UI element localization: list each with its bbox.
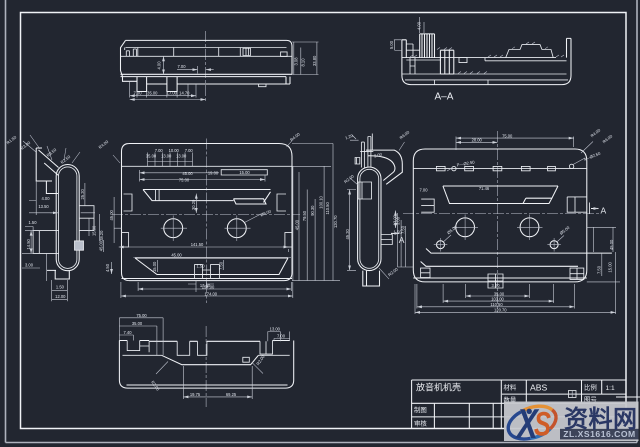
svg-text:15.00: 15.00 <box>152 261 157 272</box>
svg-text:110.50: 110.50 <box>490 302 503 307</box>
svg-text:13.00: 13.00 <box>161 154 172 159</box>
svg-text:45.00: 45.00 <box>294 219 299 230</box>
svg-text:10.00: 10.00 <box>169 148 180 153</box>
svg-text:30.20: 30.20 <box>191 199 196 210</box>
svg-text:35.00: 35.00 <box>147 91 158 96</box>
svg-text:7.50: 7.50 <box>597 265 602 274</box>
svg-text:45.00: 45.00 <box>182 171 193 176</box>
svg-text:120.70: 120.70 <box>494 308 507 313</box>
svg-text:13.50: 13.50 <box>38 204 49 209</box>
svg-text:7.00: 7.00 <box>277 334 286 339</box>
svg-text:7.00: 7.00 <box>420 187 429 192</box>
svg-text:1:1: 1:1 <box>606 385 615 392</box>
svg-text:ABS: ABS <box>530 383 547 393</box>
svg-text:75.00: 75.00 <box>179 177 190 182</box>
svg-text:75.00: 75.00 <box>136 313 147 318</box>
svg-text:14.50: 14.50 <box>26 239 31 250</box>
svg-text:15.00: 15.00 <box>239 170 250 175</box>
svg-text:4.00: 4.00 <box>42 196 51 201</box>
svg-text:71.46: 71.46 <box>479 186 490 191</box>
svg-text:5.00: 5.00 <box>389 40 394 49</box>
svg-text:3.08: 3.08 <box>294 57 299 66</box>
svg-text:174.00: 174.00 <box>205 291 218 296</box>
svg-text:3.00: 3.00 <box>492 283 501 288</box>
svg-text:1.50: 1.50 <box>56 285 65 290</box>
svg-text:13.00: 13.00 <box>176 154 187 159</box>
svg-text:7.50: 7.50 <box>401 225 406 234</box>
svg-text:33.80: 33.80 <box>312 55 317 66</box>
svg-text:A–A: A–A <box>435 92 454 103</box>
svg-text:100.10: 100.10 <box>318 195 323 208</box>
svg-text:4.00: 4.00 <box>417 21 422 30</box>
svg-text:45.00: 45.00 <box>171 253 182 258</box>
svg-text:15.00: 15.00 <box>608 262 613 273</box>
svg-text:7.00: 7.00 <box>178 64 187 69</box>
svg-text:35.00: 35.00 <box>132 321 143 326</box>
svg-text:141.50: 141.50 <box>191 242 204 247</box>
svg-text:4.00: 4.00 <box>156 61 161 70</box>
svg-text:120.70: 120.70 <box>333 215 338 228</box>
svg-text:A: A <box>399 235 405 245</box>
svg-text:79.50: 79.50 <box>302 210 307 221</box>
svg-text:14.70: 14.70 <box>179 91 190 96</box>
svg-text:69.25: 69.25 <box>226 392 237 397</box>
svg-text:45.20: 45.20 <box>345 229 350 240</box>
svg-text:28.00: 28.00 <box>472 138 483 143</box>
svg-text:154.00: 154.00 <box>202 284 215 289</box>
svg-text:45.00: 45.00 <box>99 240 104 251</box>
svg-text:25.20: 25.20 <box>80 189 85 200</box>
svg-text:材料: 材料 <box>504 383 517 392</box>
svg-text:45.00: 45.00 <box>109 210 114 221</box>
svg-text:S: S <box>534 406 551 443</box>
svg-text:放音机机壳: 放音机机壳 <box>416 382 461 393</box>
svg-text:7.40: 7.40 <box>124 330 133 335</box>
svg-text:7.00: 7.00 <box>134 91 143 96</box>
svg-text:13.00: 13.00 <box>270 327 281 332</box>
svg-text:3.00: 3.00 <box>25 262 34 267</box>
svg-text:90.30: 90.30 <box>310 205 315 216</box>
svg-text:19.75: 19.75 <box>190 392 201 397</box>
svg-text:110.50: 110.50 <box>325 202 330 215</box>
svg-text:35.00: 35.00 <box>146 154 157 159</box>
svg-text:A: A <box>601 206 607 216</box>
svg-text:45.00: 45.00 <box>609 239 614 250</box>
svg-text:4.50: 4.50 <box>105 263 110 272</box>
svg-text:7.00: 7.00 <box>155 148 164 153</box>
svg-text:1.50: 1.50 <box>197 264 206 269</box>
svg-text:103.00: 103.00 <box>491 296 504 301</box>
svg-text:28.20: 28.20 <box>99 230 104 241</box>
svg-text:17.00: 17.00 <box>167 91 178 96</box>
svg-text:7.00: 7.00 <box>185 148 194 153</box>
svg-text:75.00: 75.00 <box>502 133 513 138</box>
svg-text:12.00: 12.00 <box>55 294 66 299</box>
svg-text:审核: 审核 <box>414 419 427 428</box>
svg-text:资料网: 资料网 <box>564 406 638 433</box>
svg-text:13.00: 13.00 <box>393 214 398 225</box>
svg-text:制图: 制图 <box>414 405 427 414</box>
svg-text:比例: 比例 <box>584 383 597 392</box>
svg-text:1.50: 1.50 <box>29 220 38 225</box>
svg-text:8.10: 8.10 <box>300 58 305 67</box>
svg-text:15.00: 15.00 <box>91 225 96 236</box>
